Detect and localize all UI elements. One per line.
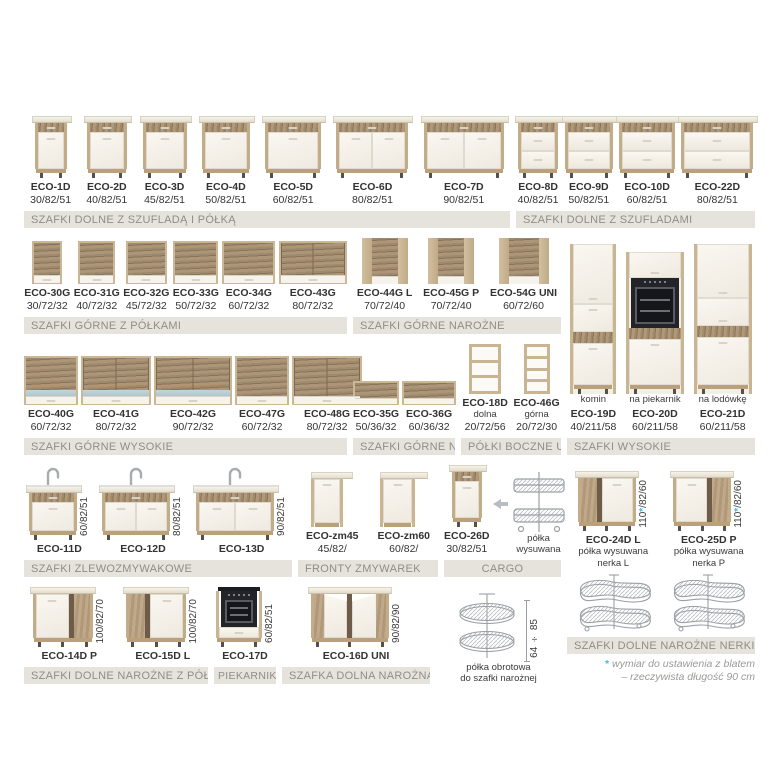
drawers-illustration	[681, 116, 753, 178]
catalog-page: ECO-1D30/82/51ECO-2D40/82/51ECO-3D45/82/…	[0, 0, 770, 770]
product-list: 90/82/90ECO-16D UNI	[282, 587, 430, 662]
wall-illustration	[173, 241, 218, 284]
cornerbase-illustration: 100/82/70	[126, 587, 199, 647]
product-eco-8d: ECO-8D40/82/51	[518, 116, 559, 206]
figure-caption: półka	[527, 533, 550, 544]
product-dimensions: 40/82/51	[518, 194, 559, 206]
product-note: na piekarnik	[629, 394, 680, 405]
section-dolne-szufladami: ECO-8D40/82/51ECO-9D50/82/51ECO-10D60/82…	[516, 116, 755, 228]
section-cargo: ECO-26D30/82/51półkawysuwana CARGO	[444, 465, 561, 577]
wallhigh-illustration	[292, 356, 362, 405]
product-eco-14d-p: 100/82/70ECO-14D P	[33, 587, 106, 662]
section-gorne-polkami: ECO-30G30/72/32ECO-31G40/72/32ECO-32G45/…	[24, 238, 347, 334]
section-gorne-wysokie: ECO-40G60/72/32ECO-41G80/72/32ECO-42G90/…	[24, 344, 347, 455]
section-header-nerki: SZAFKI DOLNE NAROŻNE NERKI	[567, 637, 755, 654]
shelf-illustration	[469, 344, 501, 394]
base1-illustration	[265, 116, 321, 178]
product-dimensions: 40/211/58	[570, 421, 616, 433]
dimension-vertical: 80/82/51	[173, 497, 183, 536]
section-gorne-niskie: ECO-35G50/36/32ECO-36G60/36/32 SZAFKI GÓ…	[353, 344, 455, 455]
product-dimensions: 60/72/32	[242, 421, 283, 433]
wall-illustration	[78, 241, 115, 284]
product-eco-12d: 80/82/51ECO-12D	[102, 466, 183, 555]
product-eco-2d: ECO-2D40/82/51	[86, 116, 127, 206]
figure-caption: półka obrotowa	[466, 662, 530, 673]
section-polka-obrotowa: 64 ÷ 85półka obrotowado szafki narożnej	[436, 587, 561, 684]
product-name: ECO-25D P	[681, 534, 736, 546]
product-eco-47g: ECO-47G60/72/32	[235, 356, 289, 433]
product-eco-16d-uni: 90/82/90ECO-16D UNI	[311, 587, 402, 662]
product-dimensions: 50/82/51	[568, 194, 609, 206]
product-name: ECO-9D	[569, 181, 609, 193]
product-dimensions: 60/72/32	[31, 421, 72, 433]
footnote-line2: – rzeczywista długość 90 cm	[621, 671, 755, 683]
drawers-illustration	[619, 116, 675, 178]
cornerbase-illustration: 100/82/70	[33, 587, 106, 647]
wall-cabinets-column: ECO-30G30/72/32ECO-31G40/72/32ECO-32G45/…	[24, 238, 561, 455]
product-eco-42g: ECO-42G90/72/32	[154, 356, 232, 433]
product-eco-43g: ECO-43G80/72/32	[279, 241, 347, 312]
figure-caption: wysuwana	[516, 544, 560, 555]
product-dimensions: 90/72/32	[173, 421, 214, 433]
product-eco-34g: ECO-34G60/72/32	[222, 241, 275, 312]
product-eco-54g-uni: ECO-54G UNI60/72/60	[490, 238, 557, 312]
dimension-vertical: 110*/82/60	[734, 480, 744, 528]
product-dimensions: 45/72/32	[126, 300, 167, 312]
product-dimensions: 50/72/32	[175, 300, 216, 312]
product-dimensions: 50/82/51	[205, 194, 246, 206]
section-dolne-narozne-polka: 100/82/70ECO-14D P100/82/70ECO-15D L SZA…	[24, 587, 208, 684]
product-dimensions: 80/72/32	[96, 421, 137, 433]
product-name: ECO-42G	[170, 408, 216, 420]
product-dimensions: 45/82/51	[144, 194, 185, 206]
section-header-dolne-szufladami: SZAFKI DOLNE Z SZUFLADAMI	[516, 211, 755, 228]
product-eco-22d: ECO-22D80/82/51	[681, 116, 753, 206]
wall2-illustration	[279, 241, 347, 284]
cornerwall-illustration	[499, 238, 549, 284]
figure-caption: do szafki narożnej	[460, 673, 537, 684]
product-dimensions: 80/72/32	[307, 421, 348, 433]
sink-illustration: 90/82/51	[196, 466, 287, 540]
product-name: ECO-26D	[444, 530, 490, 542]
cargo-figure: półkawysuwana	[511, 471, 567, 556]
product-name: ECO-10D	[624, 181, 670, 193]
drawers-illustration	[518, 116, 558, 178]
product-name: ECO-19D	[571, 408, 617, 420]
product-name: ECO-21D	[700, 408, 746, 420]
section-gorne-narozne: ECO-44G L70/72/40ECO-45G P70/72/40ECO-54…	[353, 238, 561, 334]
section-fronty-zmywarek: ECO-zm4545/82/ECO-zm6060/82/ FRONTY ZMYW…	[298, 465, 438, 577]
section-dolne-szuflada-polka: ECO-1D30/82/51ECO-2D40/82/51ECO-3D45/82/…	[24, 116, 510, 228]
product-list: ECO-30G30/72/32ECO-31G40/72/32ECO-32G45/…	[24, 241, 347, 312]
product-eco-11d: 60/82/51ECO-11D	[29, 466, 90, 555]
product-list: 100/82/70ECO-14D P100/82/70ECO-15D L	[24, 587, 208, 662]
product-eco-18d: ECO-18Ddolna20/72/56	[462, 344, 508, 433]
wall-illustration	[126, 241, 167, 284]
base1-illustration	[35, 116, 67, 178]
product-note: półka wysuwana	[578, 546, 648, 557]
product-eco-19d: kominECO-19D40/211/58	[570, 244, 616, 433]
carousel-figure: 64 ÷ 85półka obrotowado szafki narożnej	[457, 592, 540, 685]
product-note: dolna	[473, 409, 496, 420]
product-eco-13d: 90/82/51ECO-13D	[196, 466, 287, 555]
wallhigh-illustration	[24, 356, 78, 405]
product-dimensions: 20/72/30	[516, 421, 557, 433]
product-dimensions: 30/72/32	[27, 300, 68, 312]
product-eco-20d: na piekarnikECO-20D60/211/58	[626, 252, 684, 433]
product-dimensions: 45/82/	[318, 543, 347, 555]
tall-illustration	[570, 244, 616, 394]
arrow-left-icon	[493, 499, 508, 509]
section-header-gorne-wysokie: SZAFKI GÓRNE WYSOKIE	[24, 438, 347, 455]
product-list: 60/82/51ECO-17D	[214, 587, 276, 662]
section-piekarnik: 60/82/51ECO-17D PIEKARNIK	[214, 587, 276, 684]
product-list: ECO-44G L70/72/40ECO-45G P70/72/40ECO-54…	[353, 238, 561, 312]
dimension-vertical: 100/82/70	[96, 599, 106, 644]
section-zlewozmywakowe: 60/82/51ECO-11D80/82/51ECO-12D90/82/51EC…	[24, 465, 292, 577]
product-eco-30g: ECO-30G30/72/32	[24, 241, 70, 312]
section-header-piekarnik: PIEKARNIK	[214, 667, 276, 684]
product-name: ECO-41G	[93, 408, 139, 420]
product-list: ECO-8D40/82/51ECO-9D50/82/51ECO-10D60/82…	[516, 116, 755, 206]
product-name: ECO-4D	[206, 181, 246, 193]
product-dimensions: 80/72/32	[292, 300, 333, 312]
nerka-illustration	[573, 574, 655, 632]
product-dimensions: 30/82/51	[30, 194, 71, 206]
product-name: ECO-54G UNI	[490, 287, 557, 299]
nerka-illustration	[667, 574, 749, 632]
product-dimensions: 60/211/58	[700, 421, 746, 433]
figure-list: 64 ÷ 85półka obrotowado szafki narożnej	[436, 592, 561, 685]
product-name: ECO-24D L	[586, 534, 641, 546]
product-name: ECO-7D	[444, 181, 484, 193]
section-header-gorne-niskie: SZAFKI GÓRNE NISKIE	[353, 438, 455, 455]
product-eco-35g: ECO-35G50/36/32	[353, 381, 399, 433]
section-header-zlewozmywakowe: SZAFKI ZLEWOZMYWAKOWE	[24, 560, 292, 577]
product-name: ECO-45G P	[423, 287, 479, 299]
product-name: ECO-34G	[226, 287, 272, 299]
product-name: ECO-46G	[514, 397, 560, 409]
product-note: półka wysuwana	[674, 546, 744, 557]
walllow-illustration	[402, 381, 456, 405]
cornerbase-illustration: 110*/82/60	[578, 471, 649, 531]
product-eco-31g: ECO-31G40/72/32	[74, 241, 120, 312]
dimension-vertical: 110*/82/60	[639, 480, 649, 528]
corneruni-illustration: 90/82/90	[311, 587, 402, 647]
product-dimensions: 60/211/58	[632, 421, 678, 433]
product-dimensions: 60/72/60	[503, 300, 544, 312]
product-name: ECO-zm60	[377, 530, 430, 542]
wallhigh-illustration	[235, 356, 289, 405]
product-note: nerka P	[692, 558, 725, 569]
product-name: ECO-43G	[290, 287, 336, 299]
product-dimensions: 60/82/51	[273, 194, 314, 206]
dimension-vertical: 90/82/51	[277, 497, 287, 536]
product-eco-32g: ECO-32G45/72/32	[123, 241, 169, 312]
product-eco-4d: ECO-4D50/82/51	[202, 116, 250, 206]
base2-illustration	[424, 116, 504, 178]
row-wall-lower: ECO-40G60/72/32ECO-41G80/72/32ECO-42G90/…	[24, 344, 561, 455]
product-list: 110*/82/60ECO-24D Lpółka wysuwananerka L…	[567, 471, 755, 569]
product-name: ECO-15D L	[135, 650, 190, 662]
cargo-illustration	[511, 471, 567, 533]
dimension-vertical: 100/82/70	[189, 599, 199, 644]
product-dimensions: 70/72/40	[431, 300, 472, 312]
section-wysokie: kominECO-19D40/211/58na piekarnikECO-20D…	[567, 238, 755, 455]
product-eco-33g: ECO-33G50/72/32	[173, 241, 219, 312]
product-name: ECO-47G	[239, 408, 285, 420]
tallfridge-illustration	[694, 244, 752, 394]
cornerwall-illustration	[428, 238, 474, 284]
product-eco-3d: ECO-3D45/82/51	[143, 116, 187, 206]
product-name: ECO-30G	[24, 287, 70, 299]
row-wall-and-tall: ECO-30G30/72/32ECO-31G40/72/32ECO-32G45/…	[24, 238, 755, 455]
product-name: ECO-11D	[37, 543, 82, 555]
dimension-vertical: 60/82/51	[80, 497, 90, 536]
cornerbase-illustration: 110*/82/60	[673, 471, 744, 531]
wall-illustration	[222, 241, 275, 284]
cornerwall-illustration	[362, 238, 408, 284]
product-list: ECO-18Ddolna20/72/56ECO-46Ggórna20/72/30	[461, 344, 561, 433]
base1-illustration	[202, 116, 250, 178]
product-eco-40g: ECO-40G60/72/32	[24, 356, 78, 433]
product-eco-46g: ECO-46Ggórna20/72/30	[514, 344, 560, 433]
talloven-illustration	[626, 252, 684, 394]
product-dimensions: 40/72/32	[76, 300, 117, 312]
product-eco-zm45: ECO-zm4545/82/	[306, 472, 359, 555]
dimension-vertical: 60/82/51	[265, 604, 275, 643]
product-name: ECO-3D	[145, 181, 185, 193]
product-name: ECO-40G	[28, 408, 74, 420]
row-wall-upper: ECO-30G30/72/32ECO-31G40/72/32ECO-32G45/…	[24, 238, 561, 334]
product-dimensions: 60/82/	[389, 543, 418, 555]
section-header-fronty-zmywarek: FRONTY ZMYWAREK	[298, 560, 438, 577]
product-name: ECO-6D	[353, 181, 393, 193]
product-eco-17d: 60/82/51ECO-17D	[216, 587, 275, 662]
product-eco-5d: ECO-5D60/82/51	[265, 116, 321, 206]
wall-illustration	[32, 241, 62, 284]
product-eco-10d: ECO-10D60/82/51	[619, 116, 675, 206]
product-name: ECO-31G	[74, 287, 120, 299]
row-base-cabinets: ECO-1D30/82/51ECO-2D40/82/51ECO-3D45/82/…	[24, 116, 755, 228]
product-list: ECO-1D30/82/51ECO-2D40/82/51ECO-3D45/82/…	[24, 116, 510, 206]
footnote-line1: wymiar do ustawienia z blatem	[612, 658, 755, 670]
carousel-illustration: 64 ÷ 85	[457, 592, 540, 662]
wallhigh-illustration	[154, 356, 232, 405]
drawers-illustration	[565, 116, 613, 178]
section-header-wysokie: SZAFKI WYSOKIE	[567, 438, 755, 455]
product-name: ECO-16D UNI	[323, 650, 390, 662]
section-header-dolne-szuflada-polka: SZAFKI DOLNE Z SZUFLADĄ I PÓŁKĄ	[24, 211, 510, 228]
product-eco-24d-l: 110*/82/60ECO-24D Lpółka wysuwananerka L	[578, 471, 649, 569]
product-dimensions: 70/72/40	[364, 300, 405, 312]
product-dimensions: 80/82/51	[352, 194, 393, 206]
product-name: ECO-12D	[120, 543, 166, 555]
product-note: nerka L	[597, 558, 629, 569]
product-name: ECO-18D	[462, 397, 508, 409]
dimension-vertical: 64 ÷ 85	[530, 619, 540, 658]
product-eco-36g: ECO-36G60/36/32	[402, 381, 456, 433]
section-header-cargo: CARGO	[444, 560, 561, 577]
product-name: ECO-13D	[219, 543, 265, 555]
walllow-illustration	[353, 381, 399, 405]
product-eco-15d-l: 100/82/70ECO-15D L	[126, 587, 199, 662]
wallhigh-illustration	[81, 356, 151, 405]
footnote: * wymiar do ustawienia z blatem – rzeczy…	[567, 658, 755, 684]
product-eco-26d: ECO-26D30/82/51	[444, 465, 490, 555]
sink-illustration: 60/82/51	[29, 466, 90, 540]
product-dimensions: 20/72/56	[465, 421, 506, 433]
product-dimensions: 60/82/51	[627, 194, 668, 206]
section-polki-boczne: ECO-18Ddolna20/72/56ECO-46Ggórna20/72/30…	[461, 344, 561, 455]
section-dolna-narozna: 90/82/90ECO-16D UNI SZAFKA DOLNA NAROŻNA	[282, 587, 430, 684]
product-list: ECO-26D30/82/51półkawysuwana	[444, 465, 561, 555]
dwfront-illustration	[380, 472, 428, 527]
product-name: ECO-22D	[695, 181, 741, 193]
product-name: ECO-zm45	[306, 530, 359, 542]
product-name: ECO-35G	[353, 408, 399, 420]
product-eco-6d: ECO-6D80/82/51	[336, 116, 408, 206]
base1-illustration	[143, 116, 187, 178]
product-name: ECO-2D	[87, 181, 127, 193]
section-header-polki-boczne: PÓŁKI BOCZNE UNI	[461, 438, 561, 455]
product-name: ECO-33G	[173, 287, 219, 299]
section-header-gorne-narozne: SZAFKI GÓRNE NAROŻNE	[353, 317, 561, 334]
product-name: ECO-20D	[632, 408, 678, 420]
product-dimensions: 50/36/32	[356, 421, 397, 433]
product-list: ECO-zm4545/82/ECO-zm6060/82/	[298, 472, 438, 555]
product-dimensions: 30/82/51	[446, 543, 487, 555]
product-note: górna	[524, 409, 548, 420]
product-name: ECO-32G	[123, 287, 169, 299]
shelf-illustration	[524, 344, 550, 394]
product-eco-41g: ECO-41G80/72/32	[81, 356, 151, 433]
product-name: ECO-5D	[273, 181, 313, 193]
product-note: na lodówkę	[699, 394, 747, 405]
base1-illustration	[87, 116, 127, 178]
nerka-figures	[567, 574, 755, 632]
product-dimensions: 60/36/32	[409, 421, 450, 433]
dwfront-illustration	[311, 472, 353, 527]
dimension-vertical: 90/82/90	[392, 604, 402, 643]
row-bottom: 60/82/51ECO-11D80/82/51ECO-12D90/82/51EC…	[24, 465, 755, 684]
product-eco-1d: ECO-1D30/82/51	[30, 116, 71, 206]
product-name: ECO-36G	[406, 408, 452, 420]
product-dimensions: 90/82/51	[443, 194, 484, 206]
product-eco-48g: ECO-48G80/72/32	[292, 356, 362, 433]
product-eco-7d: ECO-7D90/82/51	[424, 116, 504, 206]
product-note: komin	[581, 394, 606, 405]
product-name: ECO-14D P	[42, 650, 97, 662]
section-header-dolne-narozne-polka: SZAFKI DOLNE NAROŻNE Z PÓŁKĄ	[24, 667, 208, 684]
product-list: 60/82/51ECO-11D80/82/51ECO-12D90/82/51EC…	[24, 466, 292, 555]
ovenbase-illustration: 60/82/51	[216, 587, 275, 647]
product-eco-9d: ECO-9D50/82/51	[565, 116, 613, 206]
product-name: ECO-44G L	[357, 287, 412, 299]
sink-illustration: 80/82/51	[102, 466, 183, 540]
product-list: ECO-40G60/72/32ECO-41G80/72/32ECO-42G90/…	[24, 356, 347, 433]
product-eco-zm60: ECO-zm6060/82/	[377, 472, 430, 555]
product-eco-21d: na lodówkęECO-21D60/211/58	[694, 244, 752, 433]
product-dimensions: 40/82/51	[86, 194, 127, 206]
product-eco-25d-p: 110*/82/60ECO-25D Ppółka wysuwananerka P	[673, 471, 744, 569]
product-eco-44g-l: ECO-44G L70/72/40	[357, 238, 412, 312]
row-sink-dw-cargo: 60/82/51ECO-11D80/82/51ECO-12D90/82/51EC…	[24, 465, 561, 577]
product-eco-45g-p: ECO-45G P70/72/40	[423, 238, 479, 312]
section-header-gorne-polkami: SZAFKI GÓRNE Z PÓŁKAMI	[24, 317, 347, 334]
footnote-asterisk: *	[605, 658, 609, 670]
base1-illustration	[452, 465, 482, 527]
product-name: ECO-48G	[304, 408, 350, 420]
bottom-left-column: 60/82/51ECO-11D80/82/51ECO-12D90/82/51EC…	[24, 465, 561, 684]
product-name: ECO-8D	[518, 181, 558, 193]
product-dimensions: 80/82/51	[697, 194, 738, 206]
product-dimensions: 60/72/32	[228, 300, 269, 312]
product-list: kominECO-19D40/211/58na piekarnikECO-20D…	[567, 244, 755, 433]
product-name: ECO-17D	[222, 650, 268, 662]
product-name: ECO-1D	[31, 181, 71, 193]
product-list: ECO-35G50/36/32ECO-36G60/36/32	[353, 381, 455, 433]
section-nerki: 110*/82/60ECO-24D Lpółka wysuwananerka L…	[567, 465, 755, 684]
row-corner-oven: 100/82/70ECO-14D P100/82/70ECO-15D L SZA…	[24, 587, 561, 684]
section-header-dolna-narozna: SZAFKA DOLNA NAROŻNA	[282, 667, 430, 684]
base2-illustration	[336, 116, 408, 178]
